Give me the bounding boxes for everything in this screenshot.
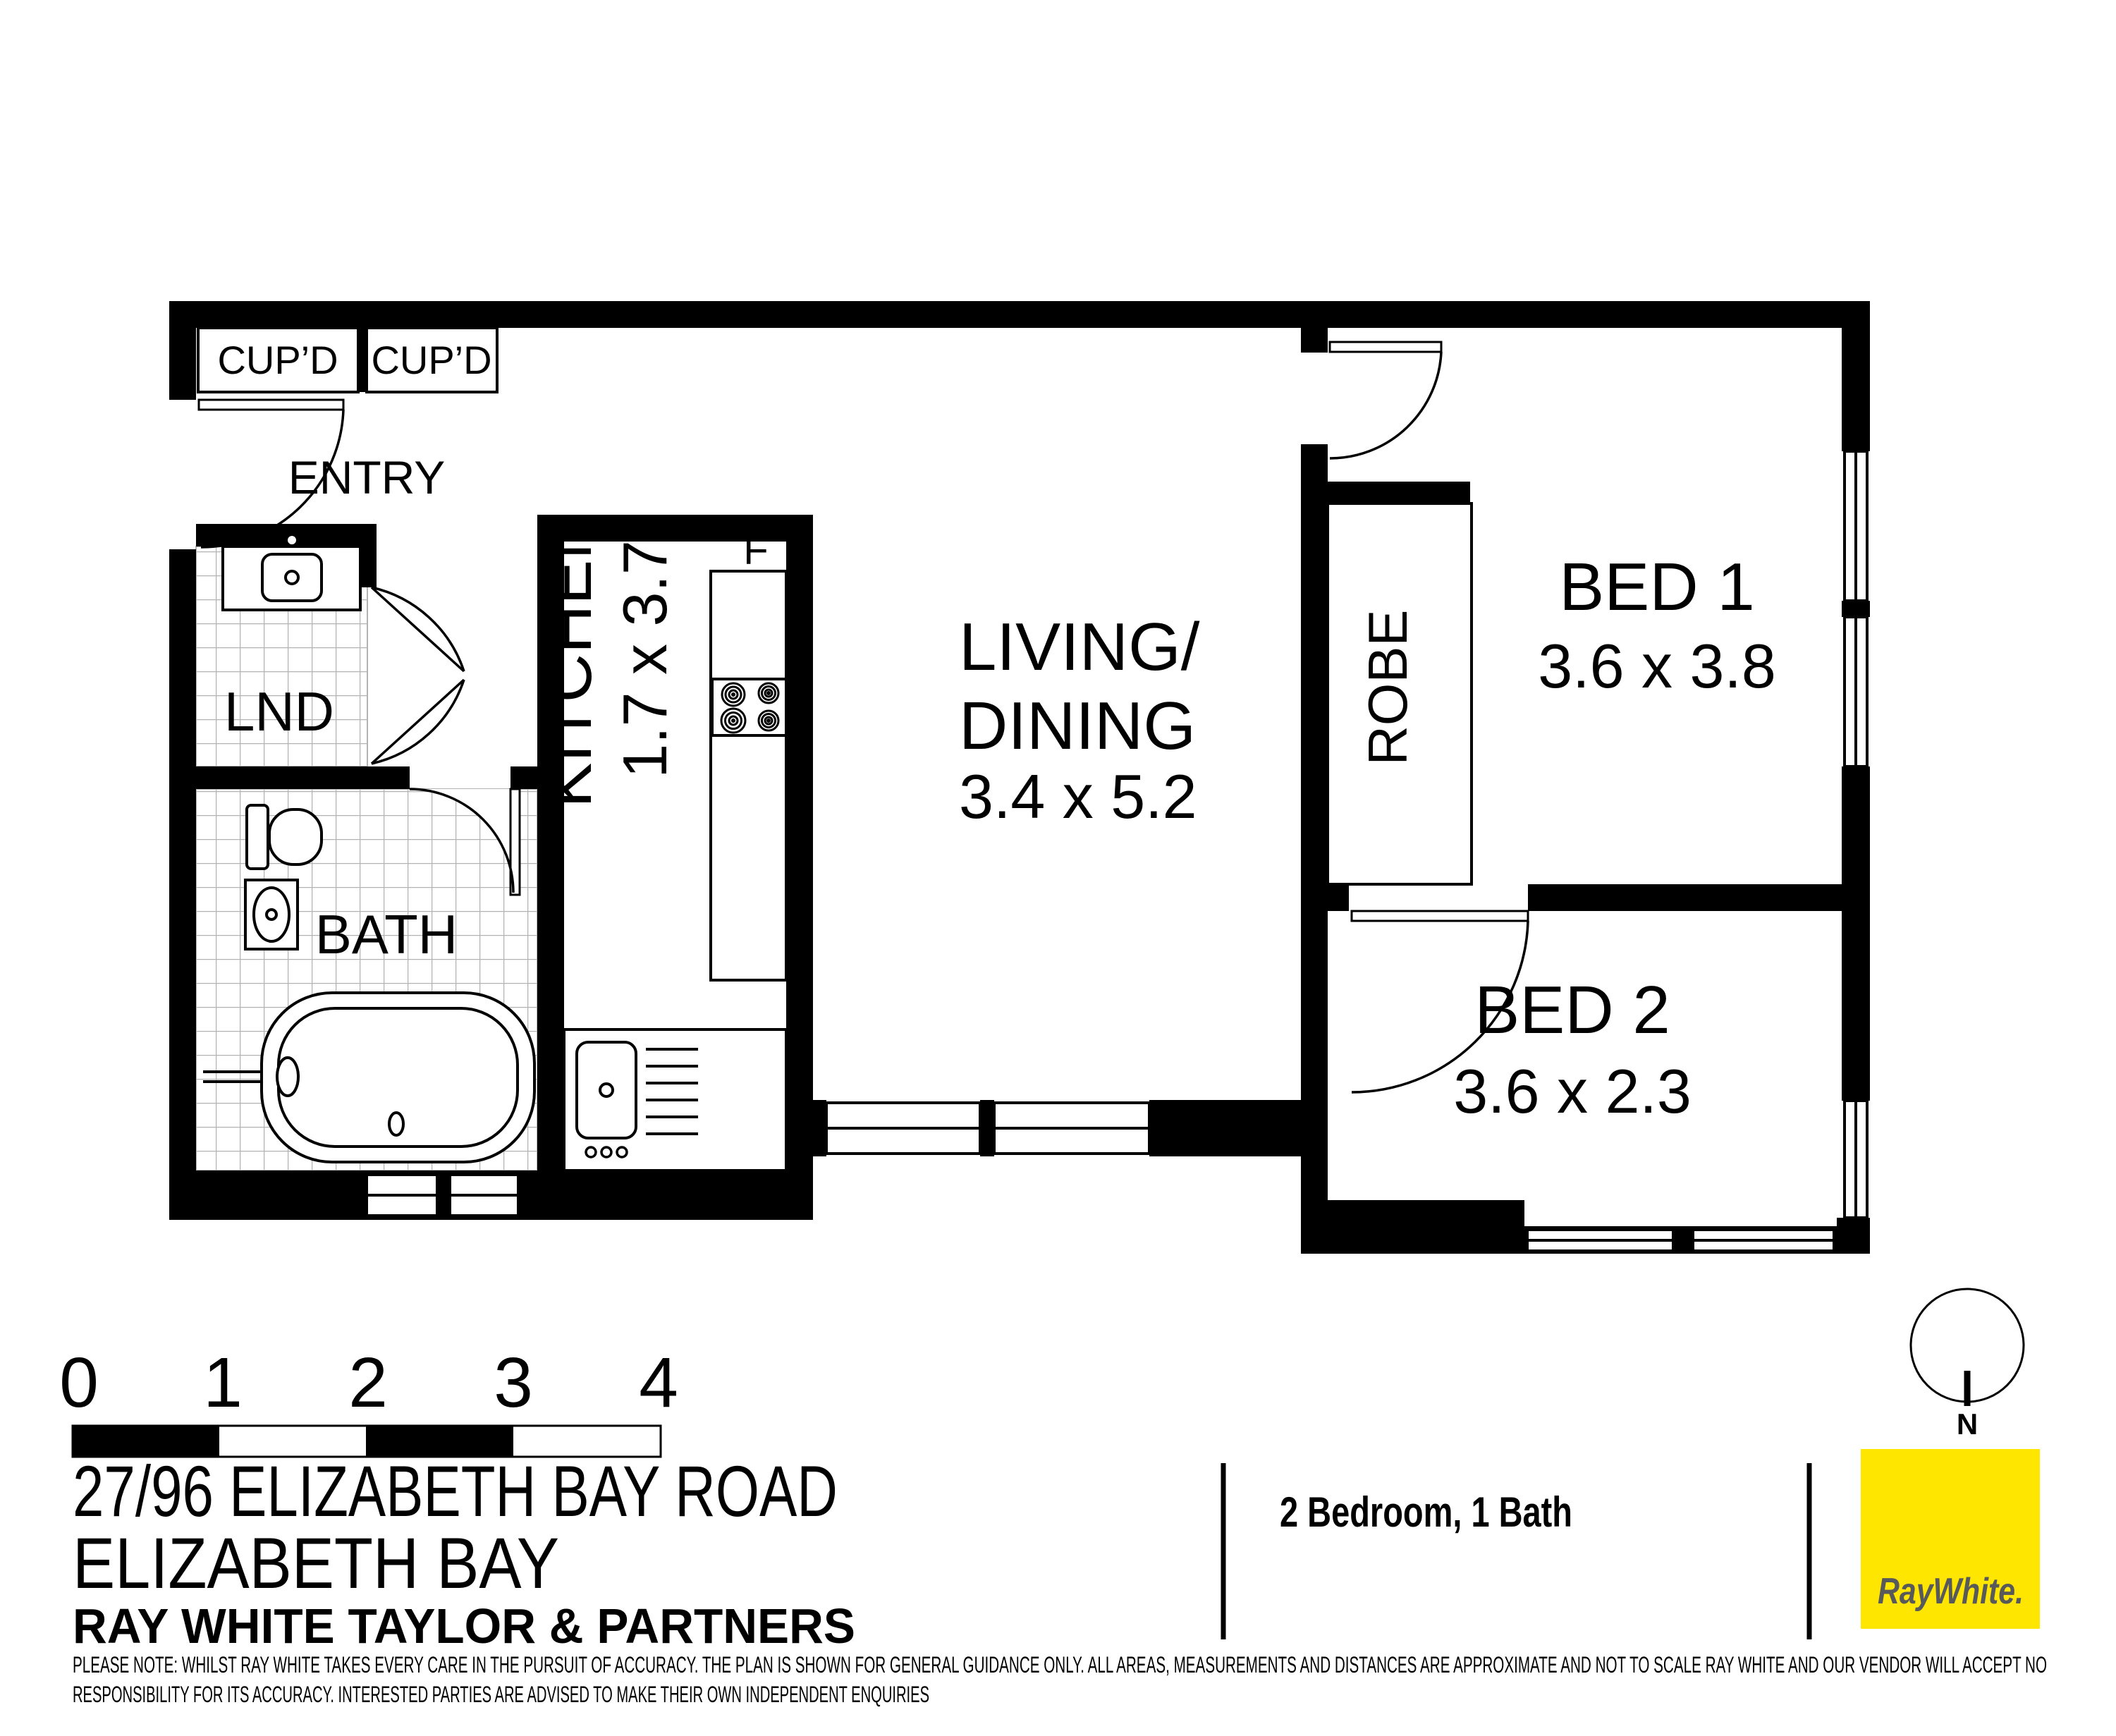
scale-tick-0: 0 — [59, 1343, 99, 1422]
laundry-label: LND — [224, 680, 334, 742]
compass-north-label: N — [1957, 1407, 1978, 1441]
living-dims: 3.4 x 5.2 — [959, 762, 1197, 831]
scale-bar: 0 1 2 3 4 — [59, 1343, 678, 1457]
wall-right-bed1-top — [1842, 301, 1870, 451]
laundry-tap — [286, 534, 298, 546]
wall-bed2-step — [1301, 1200, 1524, 1254]
scale-tick-3: 3 — [494, 1343, 533, 1422]
cupboard1-label: CUP’D — [217, 338, 338, 382]
floor-plan-page: CUP’D CUP’D ENTRY LND BATH KITCHEN 1.7 x… — [0, 0, 2116, 1736]
kitchen-label: KITCHEN — [530, 511, 606, 807]
bed2-label: BED 2 — [1474, 972, 1670, 1048]
address-line1: 27/96 ELIZABETH BAY ROAD — [73, 1451, 838, 1532]
ray-white-logo-text: RayWhite. — [1878, 1571, 2024, 1612]
wall-right-bed2-top — [1842, 911, 1870, 1101]
footer: 27/96 ELIZABETH BAY ROAD ELIZABETH BAY R… — [73, 1449, 2047, 1707]
robe-label: ROBE — [1357, 609, 1419, 765]
vanity-drain — [267, 910, 276, 919]
wall-right-bed1-mid — [1842, 601, 1870, 617]
wall-living-bed-divider — [1301, 444, 1328, 1254]
compass: N — [1911, 1289, 2024, 1441]
bathtub-tap — [277, 1058, 298, 1096]
bed1-label: BED 1 — [1559, 549, 1754, 625]
laundry-door-leaf-bottom — [372, 680, 464, 764]
ray-white-logo: RayWhite. — [1861, 1449, 2040, 1629]
wall-robe-top — [1328, 482, 1470, 503]
address-line2: ELIZABETH BAY — [73, 1523, 559, 1603]
disclaimer-line2: RESPONSIBILITY FOR ITS ACCURACY. INTERES… — [73, 1682, 929, 1707]
bed1-dims: 3.6 x 3.8 — [1538, 631, 1776, 701]
kitchen-counter-right — [711, 571, 786, 980]
entry-door-leaf — [199, 400, 343, 410]
laundry-sink-drain — [286, 571, 298, 584]
wall-top — [169, 301, 1870, 328]
floor-plan-figure: CUP’D CUP’D ENTRY LND BATH KITCHEN 1.7 x… — [0, 0, 2116, 1736]
scale-tick-4: 4 — [639, 1343, 678, 1422]
bathtub-drain — [389, 1113, 403, 1135]
bed-bath-summary: 2 Bedroom, 1 Bath — [1280, 1489, 1572, 1536]
wall-left-lower — [169, 549, 196, 1220]
toilet-bowl — [269, 809, 322, 864]
living-label-line1: LIVING/ — [959, 609, 1200, 685]
wall-bed-divider-left — [1301, 884, 1349, 911]
fridge-label: F — [743, 527, 768, 573]
wall-left-upper — [169, 301, 196, 400]
scale-tick-2: 2 — [348, 1343, 388, 1422]
cupboard2-label: CUP’D — [371, 338, 491, 382]
toilet-cistern — [247, 805, 268, 869]
kitchen-dims: 1.7 x 3.7 — [610, 540, 680, 778]
wall-bed1-door-jamb — [1301, 328, 1328, 353]
bed1-door-leaf — [1330, 342, 1441, 352]
wall-living-bottom-a — [804, 1100, 826, 1156]
bed1-door-arc — [1330, 352, 1441, 458]
kitchen-sink-drain — [600, 1084, 613, 1096]
bed2-door-leaf — [1352, 911, 1528, 921]
entry-label: ENTRY — [288, 451, 446, 503]
scale-tick-1: 1 — [203, 1343, 243, 1422]
wall-right-bed1-bottom — [1842, 766, 1870, 911]
agency-name: RAY WHITE TAYLOR & PARTNERS — [73, 1599, 855, 1654]
bed2-dims: 3.6 x 2.3 — [1453, 1056, 1692, 1126]
wall-bed-divider-right — [1528, 884, 1870, 911]
wall-living-bottom-mullion — [980, 1100, 994, 1156]
bath-label: BATH — [315, 903, 458, 965]
disclaimer-line1: PLEASE NOTE: WHILST RAY WHITE TAKES EVER… — [73, 1652, 2047, 1677]
wall-bath-top — [196, 766, 410, 789]
living-label-line2: DINING — [959, 688, 1196, 764]
laundry-door-leaf-top — [372, 587, 464, 671]
